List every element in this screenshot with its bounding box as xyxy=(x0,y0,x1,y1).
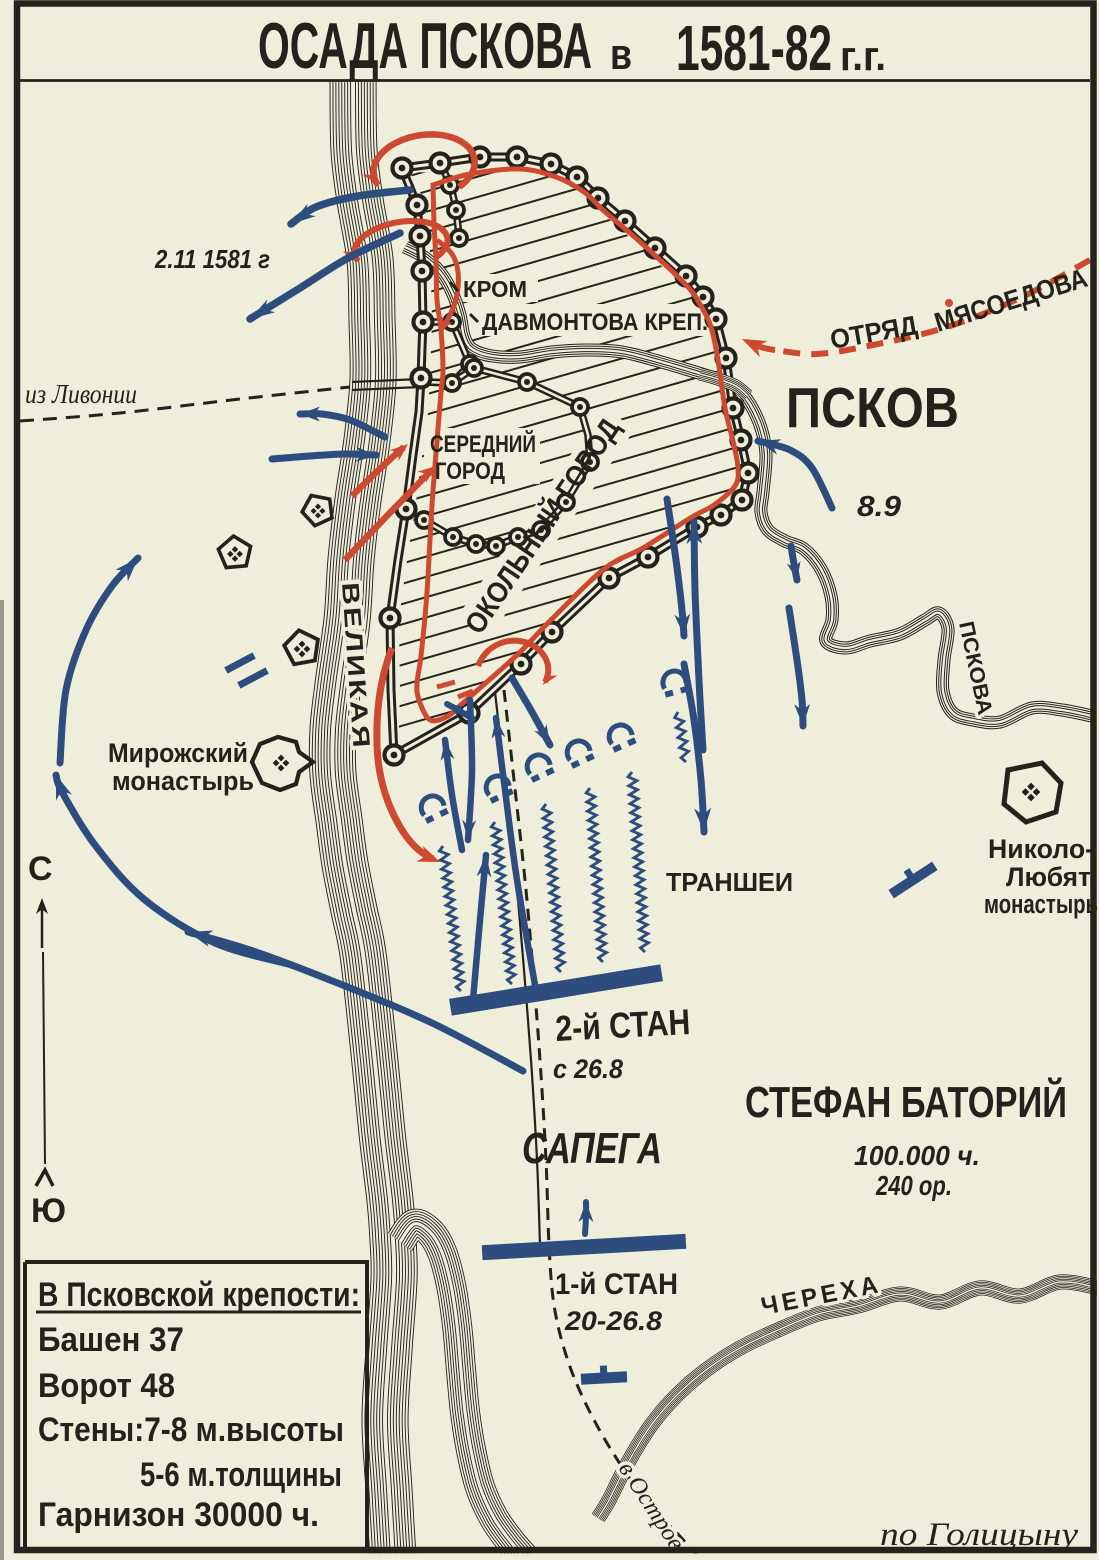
svg-text:ПСКОВ: ПСКОВ xyxy=(786,376,959,440)
svg-text:в: в xyxy=(610,30,632,79)
svg-text:г.г.: г.г. xyxy=(840,32,886,79)
svg-text:5-6 м.толщины: 5-6 м.толщины xyxy=(140,1456,342,1494)
svg-text:1-й СТАН: 1-й СТАН xyxy=(555,1268,678,1301)
svg-text:ТРАНШЕИ: ТРАНШЕИ xyxy=(666,867,793,897)
svg-text:Николо-: Николо- xyxy=(988,834,1094,864)
svg-text:КРОМ: КРОМ xyxy=(463,276,527,302)
svg-text:с 26.8: с 26.8 xyxy=(553,1054,623,1084)
svg-text:СЕРЕДНИЙ: СЕРЕДНИЙ xyxy=(430,430,536,458)
svg-text:Мирожский: Мирожский xyxy=(108,738,248,768)
svg-text:Стены:7-8 м.высоты: Стены:7-8 м.высоты xyxy=(38,1411,344,1449)
svg-text:ОСАДА ПСКОВА: ОСАДА ПСКОВА xyxy=(258,9,592,82)
svg-text:монастырь: монастырь xyxy=(112,766,254,796)
svg-text:монастырь: монастырь xyxy=(984,889,1098,919)
svg-text:100.000 ч.: 100.000 ч. xyxy=(854,1140,980,1171)
svg-text:Гарнизон 30000 ч.: Гарнизон 30000 ч. xyxy=(38,1496,319,1534)
svg-text:20-26.8: 20-26.8 xyxy=(564,1306,662,1336)
svg-text:ДАВМОНТОВА КРЕП.: ДАВМОНТОВА КРЕП. xyxy=(482,309,708,336)
svg-text:8.9: 8.9 xyxy=(857,491,901,523)
svg-text:В Псковской крепости:: В Псковской крепости: xyxy=(38,1276,360,1314)
svg-text:240 ор.: 240 ор. xyxy=(875,1170,952,1201)
svg-text:2.11 1581 г: 2.11 1581 г xyxy=(154,244,270,274)
svg-text:СТЕФАН БАТОРИЙ: СТЕФАН БАТОРИЙ xyxy=(745,1076,1067,1127)
svg-text:ГОРОД: ГОРОД xyxy=(435,458,505,485)
svg-text:С: С xyxy=(28,850,53,888)
svg-text:Ворот 48: Ворот 48 xyxy=(38,1367,175,1405)
svg-text:САПЕГА: САПЕГА xyxy=(522,1124,662,1173)
svg-text:Башен 37: Башен 37 xyxy=(38,1321,184,1359)
svg-text:Ю: Ю xyxy=(31,1192,66,1230)
svg-text:1581-82: 1581-82 xyxy=(676,12,832,84)
svg-text:Любят.: Любят. xyxy=(1006,862,1096,892)
svg-text:2-й СТАН: 2-й СТАН xyxy=(554,1001,691,1049)
svg-text:из Ливонии: из Ливонии xyxy=(25,379,137,409)
